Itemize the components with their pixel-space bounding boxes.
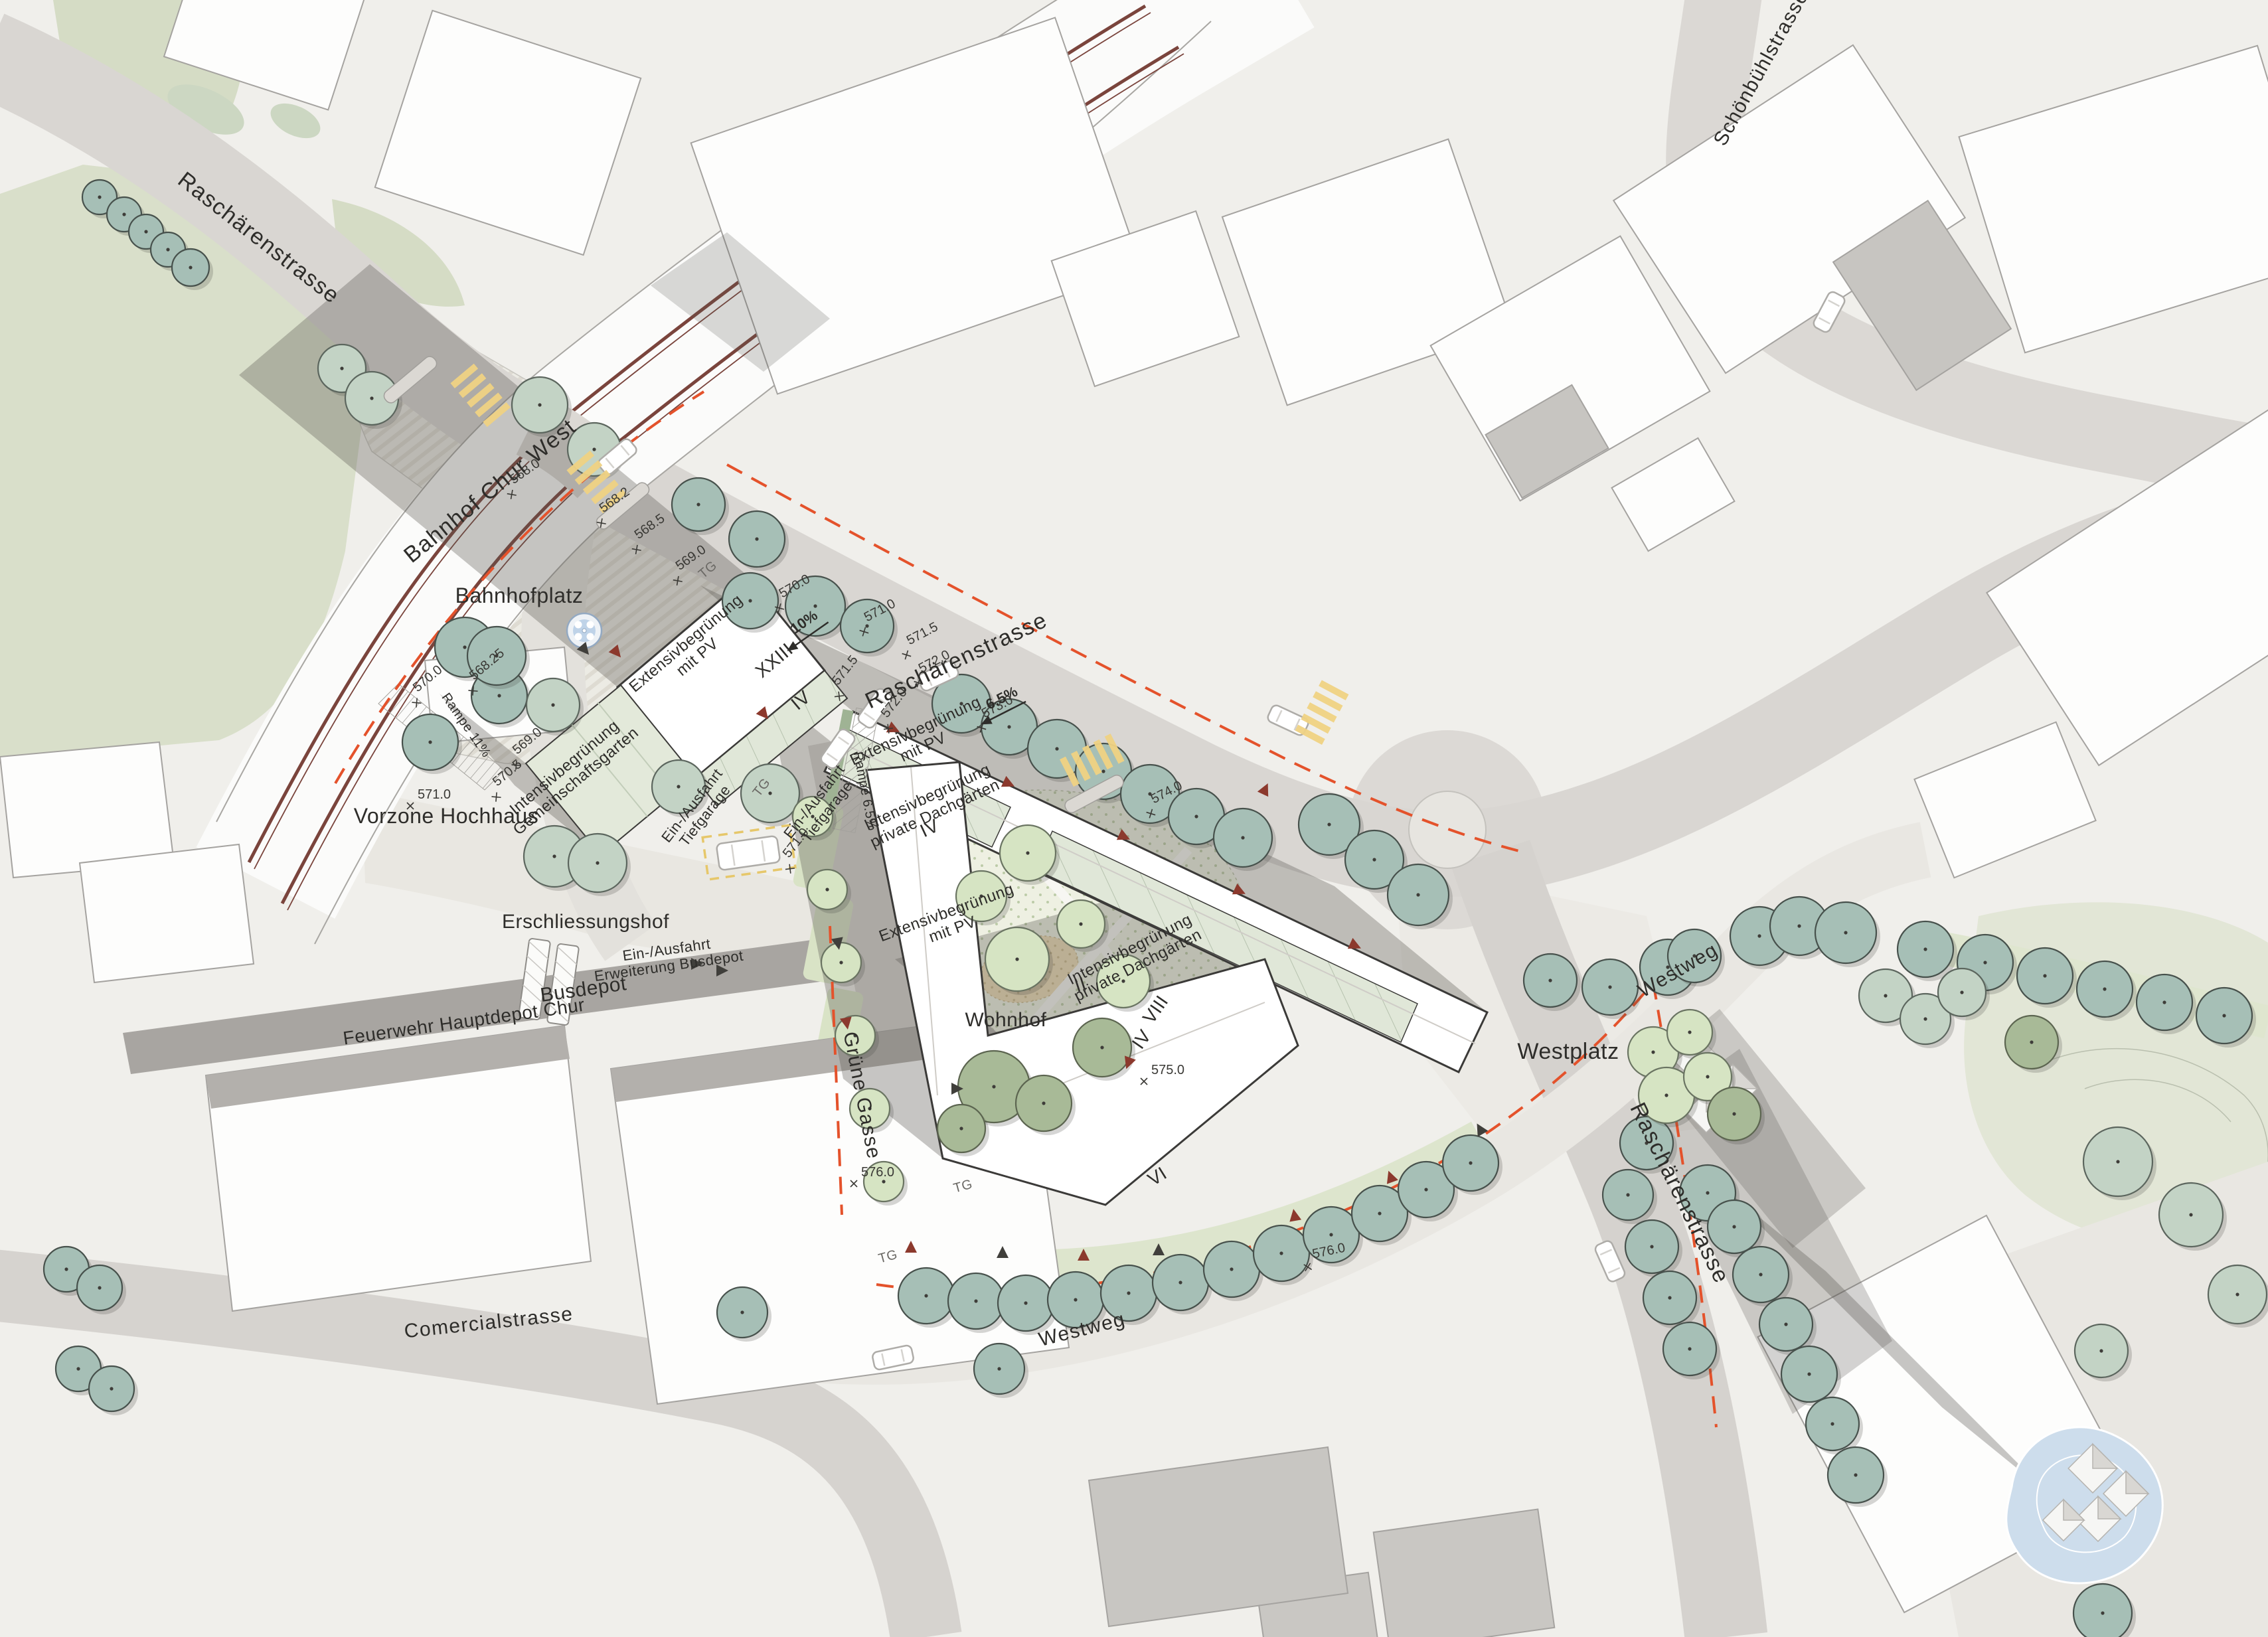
svg-text:571.0: 571.0 [418,787,451,802]
areas-label: Erschliessungshof [502,911,669,933]
fountain [567,613,602,648]
site-plan: RaschärenstrasseRaschärenstrasseRaschäre… [0,0,2268,1637]
areas-label: Wohnhof [965,1009,1046,1031]
site-plan-stage: RaschärenstrasseRaschärenstrasseRaschäre… [0,0,2268,1637]
svg-text:576.0: 576.0 [861,1165,894,1180]
svg-text:575.0: 575.0 [1151,1063,1184,1077]
junction-inner [1409,791,1486,868]
areas-label: Bahnhofplatz [455,584,584,607]
areas-label: Westplatz [1517,1039,1619,1064]
